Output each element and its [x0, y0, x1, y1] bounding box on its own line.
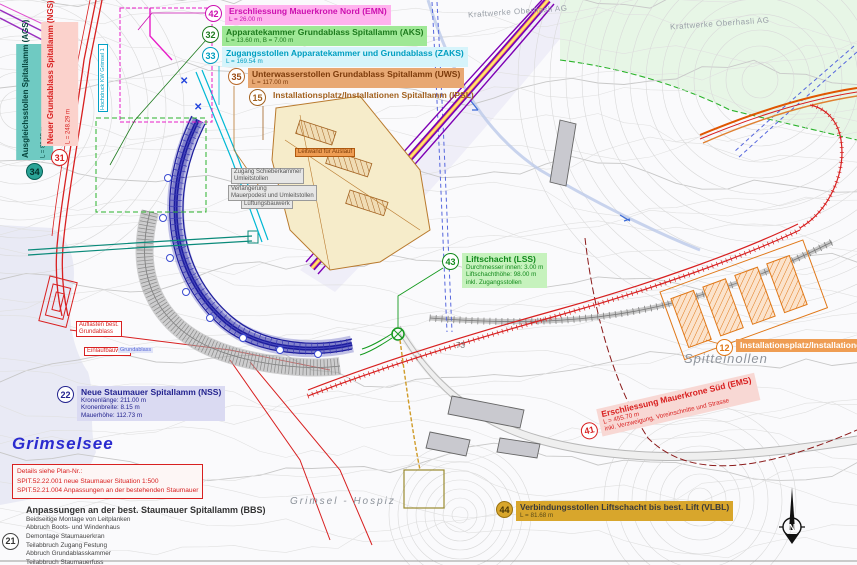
- callout-ngs[interactable]: Neuer Grundablass Spitallamm (NGS) L = 2…: [41, 22, 78, 166]
- callout-title: Neue Staumauer Spitallamm (NSS): [81, 387, 221, 397]
- callout-emn[interactable]: 42 Erschliessung Mauerkrone Nord (EMN) L…: [205, 5, 391, 25]
- callout-number-badge: 42: [205, 5, 222, 22]
- callout-vlbl[interactable]: 44 Verbindungsstollen Liftschacht bis be…: [496, 501, 733, 521]
- callout-number-badge: 33: [202, 47, 219, 64]
- callout-sub: L = 117.00 m: [252, 79, 460, 86]
- callout-nss[interactable]: 22 Neue Staumauer Spitallamm (NSS) Krone…: [57, 386, 225, 421]
- callout-zaks[interactable]: 33 Zugangsstollen Apparatekammer und Gru…: [202, 47, 468, 67]
- site-plan: ✕ ✕: [0, 0, 857, 565]
- callout-title: Installationsplatz/Installationen Nollen: [740, 340, 857, 350]
- callout-title: Zugangsstollen Apparatekammer und Grunda…: [226, 48, 464, 58]
- svg-text:✕: ✕: [194, 102, 202, 113]
- callout-title: Neuer Grundablass Spitallamm (NGS): [46, 0, 55, 144]
- auflasten-label: Auflasten best. Grundablass: [76, 321, 122, 337]
- druckleitung-label: Hochdruck KW Grimsel 1: [98, 44, 108, 112]
- callout-number-badge: 15: [249, 89, 266, 106]
- callout-sub: L = 169.54 m: [226, 58, 464, 65]
- verlaengerung-label: Verlängerung Mauerpodest und Umleitstoll…: [228, 185, 317, 201]
- callout-ipsl[interactable]: 15 Installationsplatz/Installationen Spi…: [249, 89, 478, 106]
- details-reference-box: Details siehe Plan-Nr.: SPIT.52.22.001 n…: [12, 464, 203, 499]
- callout-sub: L = 248.29 m: [66, 109, 72, 144]
- details-line: Details siehe Plan-Nr.:: [17, 467, 198, 477]
- callout-aks[interactable]: 32 Apparatekammer Grundablass Spitallamm…: [202, 26, 427, 46]
- callout-lss[interactable]: 43 Liftschacht (LSS) Durchmesser innen: …: [442, 253, 547, 288]
- callout-title: Erschliessung Mauerkrone Nord (EMN): [229, 6, 387, 16]
- zugang-schieberkammer-label: Zugang Schieberkammer Umleitstollen: [231, 168, 304, 184]
- callout-sub: L = 13.60 m, B = 7.00 m: [226, 37, 423, 44]
- callout-title: Anpassungen an der best. Staumauer Spita…: [26, 505, 266, 516]
- callout-bbs[interactable]: 21 Anpassungen an der best. Staumauer Sp…: [2, 504, 270, 565]
- bbs-measure-list: Beidseitige Montage von LeitplankenAbbru…: [26, 516, 266, 565]
- callout-number-badge: 12: [716, 339, 733, 356]
- callout-sub: Kronenbreite: 8.15 m: [81, 404, 221, 411]
- callout-number-badge: 21: [2, 533, 19, 550]
- details-line: SPIT.52.21.004 Anpassungen an der besteh…: [17, 486, 198, 496]
- callout-number-badge: 31: [51, 149, 68, 166]
- list-item: Beidseitige Montage von Leitplanken: [26, 516, 266, 525]
- callout-number-badge: 44: [496, 501, 513, 518]
- callout-sub: Liftschachthöhe: 98.00 m: [466, 271, 543, 278]
- list-item: Demontage Staumauerkran: [26, 533, 266, 542]
- flow-arrow-icon: [470, 100, 630, 221]
- details-line: SPIT.52.22.001 neue Staumauer Situation …: [17, 477, 198, 487]
- list-item: Abbruch Boots- und Windenhaus: [26, 524, 266, 533]
- callout-nollen[interactable]: 12 Installationsplatz/Installationen Nol…: [716, 339, 857, 356]
- callout-title: Installationsplatz/Installationen Spital…: [273, 90, 474, 100]
- callout-sub: L = 81.68 m: [520, 512, 729, 519]
- callout-number-badge: 32: [202, 26, 219, 43]
- callout-title: Ausgleichsstollen Spitallamm (AGS): [21, 20, 30, 158]
- lueftungsbauwerk-label: Lüftungsbauwerk: [241, 200, 293, 209]
- list-item: Teilabbruch Zugang Festung: [26, 542, 266, 551]
- callout-sub: inkl. Zugangsstollen: [466, 279, 543, 286]
- north-arrow-icon: N: [779, 487, 805, 544]
- svg-text:N: N: [789, 523, 796, 533]
- callout-number-badge: 35: [228, 68, 245, 85]
- grundablass-label: Grundablass: [118, 347, 153, 353]
- callout-number-badge: 43: [442, 253, 459, 270]
- callout-sub: Durchmesser innen: 3.00 m: [466, 264, 543, 271]
- lake-label: Grimselsee: [12, 434, 114, 454]
- callout-sub: Mauerhöhe: 112.73 m: [81, 412, 221, 419]
- callout-sub: Kronenlänge: 211.00 m: [81, 397, 221, 404]
- leitwand-label: Leitwand für Auslauf: [295, 148, 355, 157]
- callout-title: Unterwasserstollen Grundablass Spitallam…: [252, 69, 460, 79]
- callout-title: Liftschacht (LSS): [466, 254, 543, 264]
- hospiz-label: Grimsel - Hospiz: [290, 496, 396, 507]
- list-item: Teilabbruch Staumauerfuss: [26, 559, 266, 565]
- callout-uws[interactable]: 35 Unterwasserstollen Grundablass Spital…: [228, 68, 464, 88]
- callout-title: Verbindungsstollen Liftschacht bis best.…: [520, 502, 729, 512]
- list-item: Abbruch Grundablasskammer: [26, 550, 266, 559]
- callout-title: Apparatekammer Grundablass Spitallamm (A…: [226, 27, 423, 37]
- callout-number-badge: 22: [57, 386, 74, 403]
- callout-sub: L = 26.00 m: [229, 16, 387, 23]
- point-73-label: 73: [456, 341, 465, 350]
- svg-text:✕: ✕: [180, 76, 188, 87]
